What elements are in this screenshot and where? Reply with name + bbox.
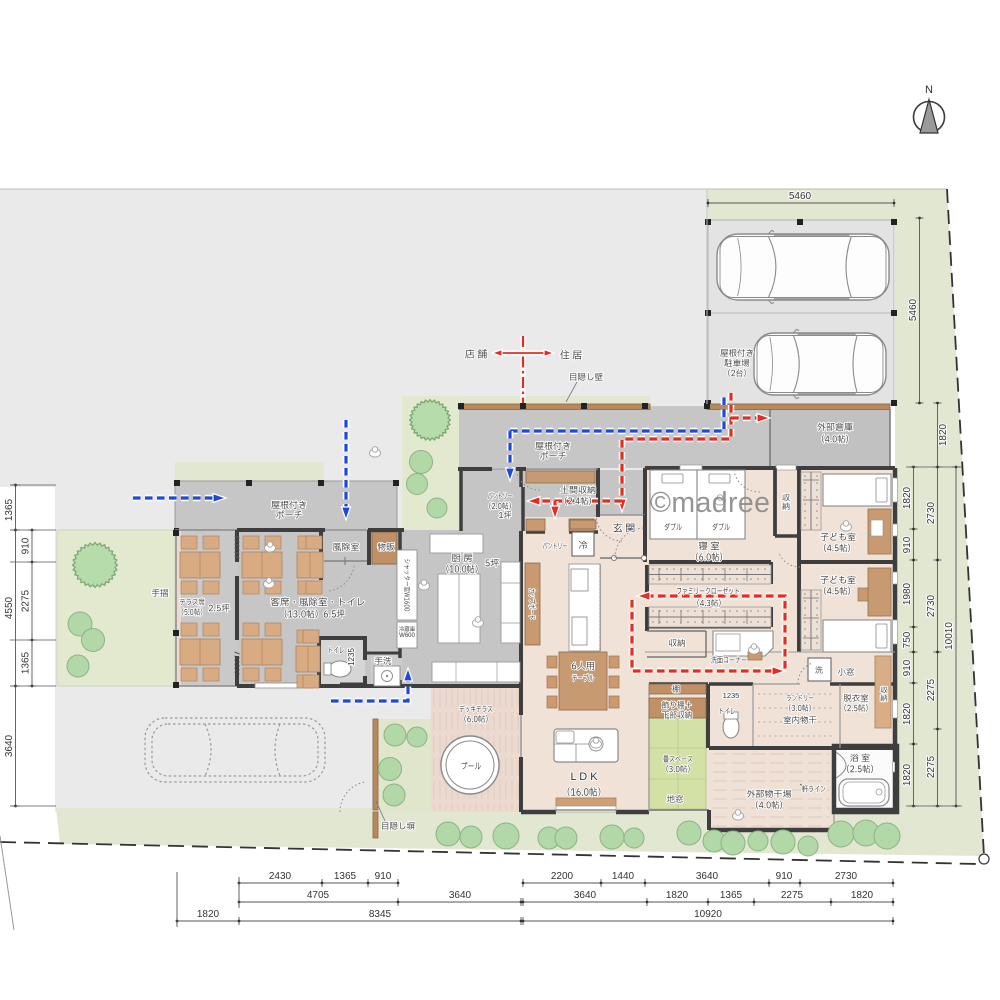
svg-text:W600: W600 xyxy=(399,633,415,639)
svg-text:3640: 3640 xyxy=(696,871,719,882)
svg-text:©madree: ©madree xyxy=(650,487,770,519)
svg-text:1980: 1980 xyxy=(902,582,913,605)
svg-text:10920: 10920 xyxy=(694,909,722,920)
svg-text:2200: 2200 xyxy=(551,871,574,882)
svg-text:2730: 2730 xyxy=(926,501,937,524)
svg-text:5460: 5460 xyxy=(789,191,812,202)
svg-text:2730: 2730 xyxy=(835,871,858,882)
svg-text:910: 910 xyxy=(902,536,913,553)
svg-text:4550: 4550 xyxy=(4,596,15,619)
svg-text:L D K: L D K xyxy=(570,771,598,783)
svg-text:1365: 1365 xyxy=(4,498,15,521)
svg-text:N: N xyxy=(925,84,933,96)
svg-text:910: 910 xyxy=(902,659,913,676)
svg-text:1365: 1365 xyxy=(720,890,743,901)
svg-text:910: 910 xyxy=(21,537,32,554)
svg-text:8345: 8345 xyxy=(369,909,392,920)
svg-text:10010: 10010 xyxy=(944,622,955,650)
svg-text:1440: 1440 xyxy=(612,871,635,882)
svg-text:1820: 1820 xyxy=(666,890,689,901)
svg-text:910: 910 xyxy=(776,871,793,882)
svg-text:3640: 3640 xyxy=(4,734,15,757)
svg-text:1365: 1365 xyxy=(334,871,357,882)
svg-text:910: 910 xyxy=(375,871,392,882)
svg-text:2730: 2730 xyxy=(926,594,937,617)
svg-text:2275: 2275 xyxy=(926,755,937,778)
svg-text:4705: 4705 xyxy=(307,890,330,901)
svg-text:1820: 1820 xyxy=(902,763,913,786)
svg-text:1820: 1820 xyxy=(902,486,913,509)
svg-text:2275: 2275 xyxy=(926,678,937,701)
svg-text:2275: 2275 xyxy=(21,589,32,612)
svg-text:2430: 2430 xyxy=(269,871,292,882)
svg-text:3640: 3640 xyxy=(449,890,472,901)
svg-text:1235: 1235 xyxy=(723,691,740,700)
svg-text:750: 750 xyxy=(902,631,913,648)
svg-text:1820: 1820 xyxy=(938,423,949,446)
svg-text:1820: 1820 xyxy=(902,702,913,725)
svg-text:1820: 1820 xyxy=(197,909,220,920)
svg-text:2275: 2275 xyxy=(781,890,804,901)
svg-text:1235: 1235 xyxy=(347,648,356,666)
svg-text:1365: 1365 xyxy=(21,651,32,674)
svg-text:3640: 3640 xyxy=(574,890,597,901)
svg-text:5460: 5460 xyxy=(908,298,919,321)
svg-text:1820: 1820 xyxy=(851,890,874,901)
